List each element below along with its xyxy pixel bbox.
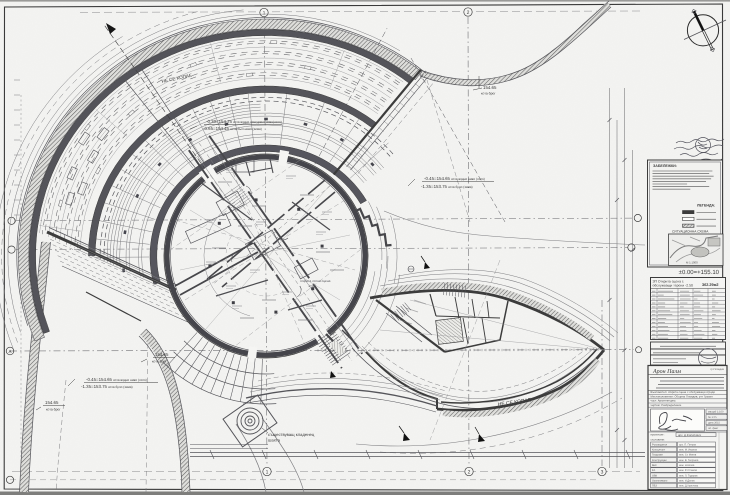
svg-text:кота брег: кота брег (46, 408, 61, 412)
svg-text:инж. Н.Колев: инж. Н.Колев (679, 464, 695, 467)
svg-text:арх. Д.Филипович: арх. Д.Филипович (678, 433, 702, 437)
svg-text:154.65: 154.65 (483, 85, 497, 90)
svg-text:Озеленяване: Озеленяване (652, 479, 668, 482)
svg-text:ЗАБЕЛЕЖКИ:: ЗАБЕЛЕЖКИ: (653, 164, 677, 168)
svg-text:инж. Ст. Митев: инж. Ст. Митев (679, 454, 697, 457)
svg-text:№ 1 05: № 1 05 (708, 416, 717, 419)
svg-text:чертеж: Разпределение: чертеж: Разпределение (651, 403, 682, 407)
svg-text:съществуващ кладенец: съществуващ кладенец (268, 432, 315, 437)
svg-text:-0.30=154.75 кота водно осигур: -0.30=154.75 кота водно осигурено ниво(л… (206, 119, 282, 124)
svg-text:шахта: шахта (268, 438, 281, 443)
svg-text:ЛЕГЕНДА:: ЛЕГЕНДА: (697, 204, 715, 208)
svg-text:проектант:: проектант: (651, 433, 665, 437)
svg-text:Геодезия: Геодезия (652, 454, 663, 457)
svg-text:2: 2 (468, 469, 471, 475)
svg-text:Арон Палм: Арон Палм (652, 369, 681, 375)
svg-text:съставили:: съставили: (651, 438, 666, 442)
svg-text:154.65: 154.65 (45, 400, 59, 405)
svg-text:М 1:1000: М 1:1000 (686, 261, 698, 265)
svg-text:кота брег: кота брег (481, 92, 496, 96)
svg-text:инж. М. Иванов: инж. М. Иванов (679, 449, 698, 452)
svg-text:ВиК: ВиК (652, 464, 657, 467)
svg-text:об. факт: об. факт (708, 427, 719, 430)
svg-text:открита лятна сцена: открита лятна сцена (300, 279, 331, 283)
svg-text:-0.45=154.65 кота водно ниво (: -0.45=154.65 кота водно ниво (лято) (424, 176, 485, 181)
svg-text:Ел.: Ел. (652, 469, 656, 472)
svg-text:2: 2 (467, 10, 470, 16)
svg-text:3: 3 (601, 469, 604, 475)
svg-text:154.65: 154.65 (155, 352, 169, 357)
svg-text:мащаб 1:100: мащаб 1:100 (708, 410, 724, 413)
svg-text:ПБЗ: ПБЗ (652, 485, 657, 488)
svg-text:инж. И.Донев: инж. И.Донев (679, 479, 695, 482)
svg-text:-0.45=154.65 кота водно ниво (: -0.45=154.65 кота водно ниво (лято) (86, 377, 147, 382)
svg-text:362.29м2: 362.29м2 (702, 283, 719, 287)
svg-text:A: A (8, 349, 11, 354)
svg-text:дата 2015: дата 2015 (708, 422, 721, 425)
svg-text:ОВК: ОВК (652, 474, 658, 477)
svg-text:1: 1 (266, 469, 269, 475)
svg-text:инж. Л. Тодоров: инж. Л. Тодоров (679, 474, 698, 477)
svg-text:кота брег: кота брег (152, 360, 167, 364)
svg-text:±0.00=+155.10: ±0.00=+155.10 (679, 269, 720, 276)
svg-text:-1.35=153.75 кота було (зима): -1.35=153.75 кота було (зима) (81, 384, 133, 389)
svg-text:1: 1 (263, 10, 266, 16)
svg-text:гр.Пловдив: гр.Пловдив (710, 368, 724, 371)
svg-text:Консултант: Консултант (652, 449, 666, 452)
svg-text:инж. Р. Станков: инж. Р. Станков (679, 469, 698, 472)
svg-text:Конструкции: Конструкции (652, 459, 667, 462)
svg-text:арх. П. Петров: арх. П. Петров (679, 443, 697, 446)
svg-text:обслужващи терени -2.50: обслужващи терени -2.50 (653, 284, 693, 288)
svg-text:-0.65=154.45 кота бълг.ниво (з: -0.65=154.45 кота бълг.ниво (зима) (203, 126, 262, 131)
svg-text:инж. Д.Христова: инж. Д.Христова (679, 485, 699, 488)
svg-text:-2.50: -2.50 (308, 284, 315, 288)
svg-text:инж. В. Георгиев: инж. В. Георгиев (679, 459, 699, 462)
svg-text:СИТУАЦИОННА СХЕМА: СИТУАЦИОННА СХЕМА (672, 230, 709, 234)
svg-text:Ръководител: Ръководител (652, 443, 668, 446)
svg-text:-1.35=153.75 кота було (зима): -1.35=153.75 кота було (зима) (421, 184, 473, 189)
